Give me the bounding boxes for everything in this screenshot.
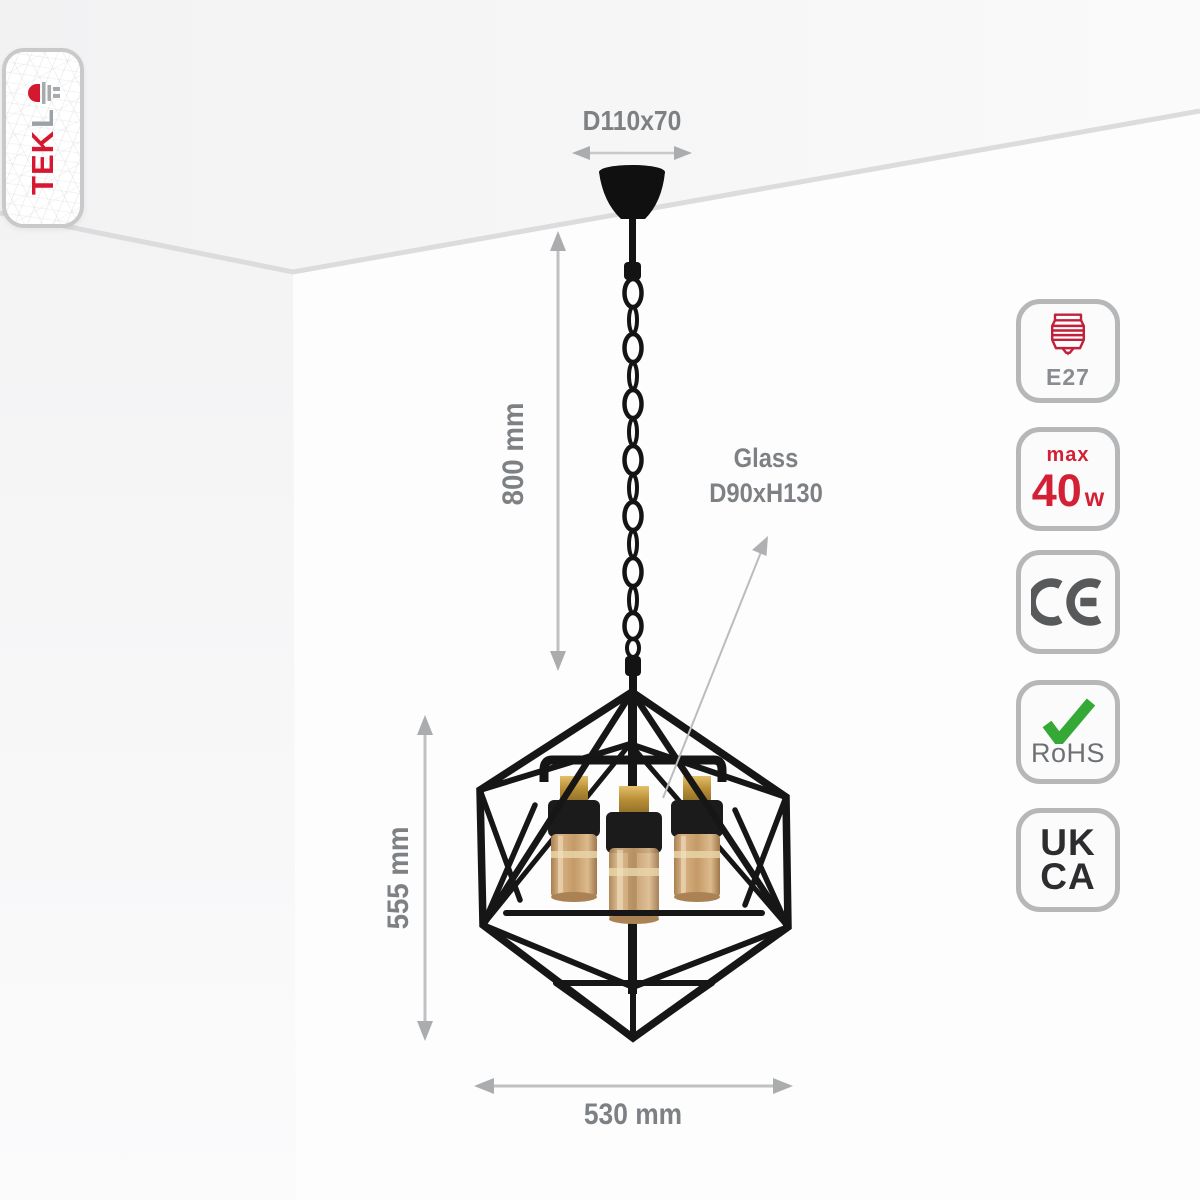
fixture-width-label: 530 mm — [563, 1098, 704, 1132]
badge-ukca-line1: UK — [1040, 826, 1095, 860]
glass-size-label: Glass D90xH130 — [696, 441, 837, 511]
ce-mark-icon — [1031, 578, 1105, 626]
led-diode-icon — [26, 81, 60, 105]
badge-wattage-value: 40 — [1032, 468, 1082, 513]
glass-size-label-line2: D90xH130 — [696, 476, 837, 511]
badge-e27-label: E27 — [1046, 364, 1090, 391]
badge-rohs: RoHS — [1016, 680, 1120, 784]
green-checkmark-icon — [1039, 698, 1097, 744]
brand-logo: TEKL — [25, 81, 61, 195]
badge-wattage: 40 w — [1032, 468, 1105, 513]
left-wall — [0, 211, 296, 1200]
badge-ukca-line2: CA — [1040, 860, 1095, 894]
brand-text-grey: L — [25, 108, 61, 128]
fixture-height-label: 555 mm — [382, 823, 416, 933]
badge-max-wattage: max 40 w — [1016, 427, 1120, 531]
canopy-dimension-label: D110x70 — [565, 105, 699, 137]
e27-bulb-base-icon — [1042, 311, 1094, 363]
badge-ukca: UK CA — [1016, 808, 1120, 912]
glass-size-label-line1: Glass — [696, 441, 837, 476]
badge-wattage-unit: w — [1085, 486, 1104, 511]
badge-max-prefix: max — [1046, 445, 1089, 465]
brand-logo-card: TEKL — [2, 48, 84, 228]
drop-height-label: 800 mm — [497, 399, 531, 509]
badge-e27: E27 — [1016, 299, 1120, 403]
badge-rohs-label: RoHS — [1031, 740, 1105, 767]
badge-ce — [1016, 550, 1120, 654]
brand-text-red: TEK — [25, 130, 61, 195]
